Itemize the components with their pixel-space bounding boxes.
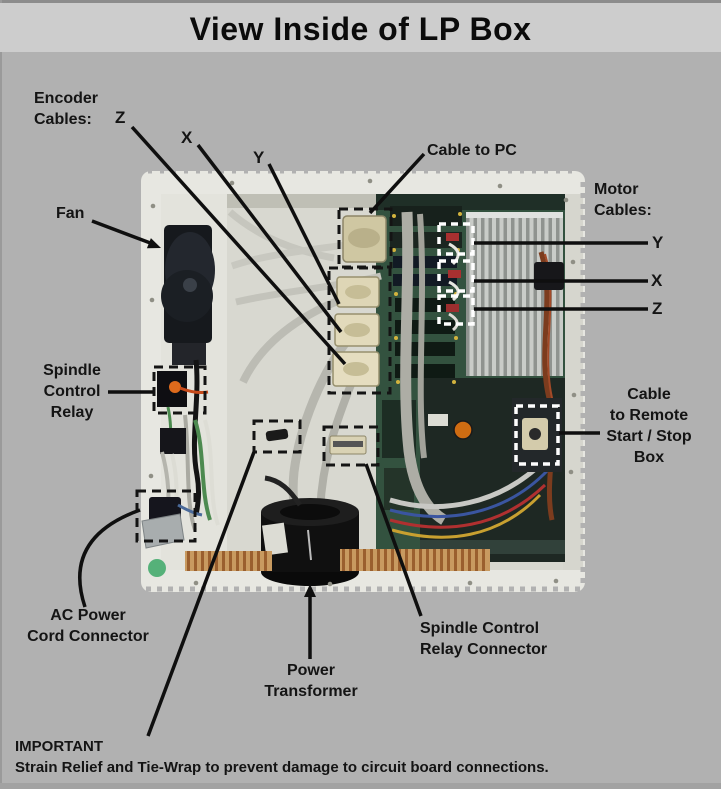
lp-box-photo	[137, 171, 585, 592]
label-encoder-cables: Encoder Cables:	[34, 88, 98, 130]
label-fan: Fan	[56, 203, 84, 224]
label-motor-x: X	[651, 270, 662, 291]
label-motor-z: Z	[652, 298, 662, 319]
green-indicator-dot	[148, 559, 166, 577]
label-motor-cables: Motor Cables:	[594, 179, 652, 221]
pc-connector	[343, 216, 386, 262]
label-motor-y: Y	[652, 232, 663, 253]
label-cable-to-pc: Cable to PC	[427, 140, 517, 161]
label-power-transformer: Power Transformer	[240, 660, 382, 702]
label-important-text: Strain Relief and Tie-Wrap to prevent da…	[15, 757, 549, 778]
label-encoder-x: X	[181, 127, 192, 148]
spindle-relay-connector	[330, 436, 366, 454]
label-important-title: IMPORTANT	[15, 736, 103, 757]
right-edge-connector	[534, 262, 564, 290]
label-spindle-control-relay: Spindle Control Relay	[28, 360, 116, 423]
page-bottom-edge	[0, 783, 721, 789]
label-encoder-z: Z	[115, 107, 125, 128]
remote-connector	[512, 398, 562, 472]
label-spindle-relay-connector: Spindle Control Relay Connector	[420, 618, 547, 660]
label-ac-power-cord: AC Power Cord Connector	[14, 605, 162, 647]
label-cable-to-remote: Cable to Remote Start / Stop Box	[598, 384, 700, 468]
label-encoder-y: Y	[253, 147, 264, 168]
callout-line-ac-power	[80, 510, 140, 607]
capacitor	[454, 421, 472, 439]
